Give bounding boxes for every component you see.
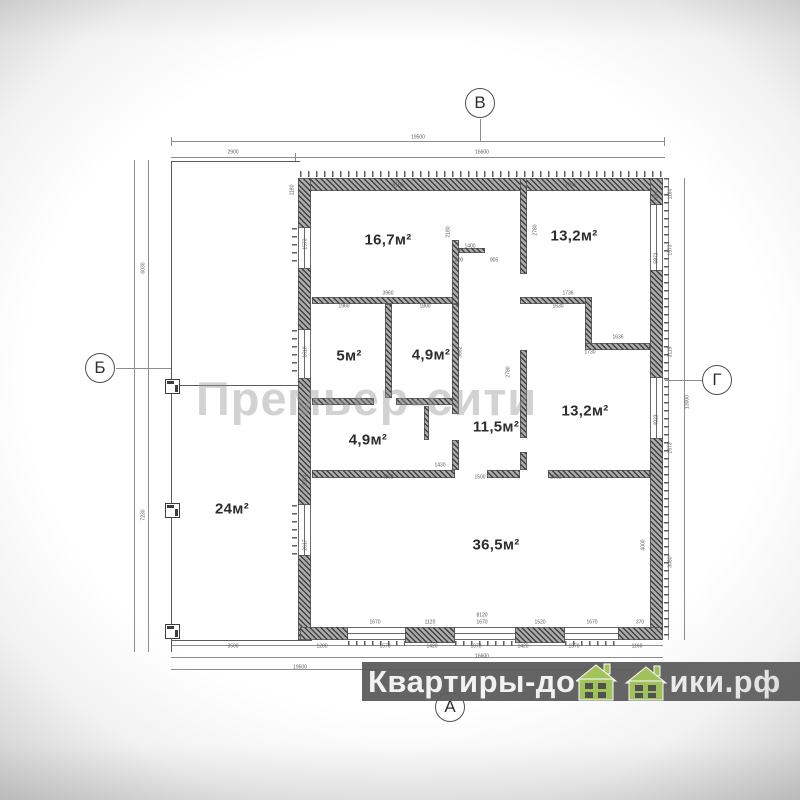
dimension-label: 1400 — [464, 245, 475, 250]
dimension-label: 5560 — [392, 184, 403, 189]
dimension-label: 1570 — [568, 645, 579, 650]
dimension-label: 1573 — [669, 442, 674, 453]
dimension-label: 1070 — [470, 645, 481, 650]
dimension-label: 1670 — [476, 621, 487, 626]
window-sill-pier — [515, 627, 565, 643]
window — [650, 378, 663, 438]
dimension-label: 1420 — [517, 645, 528, 650]
room-label: 4,9м² — [349, 432, 387, 449]
terrace-outline-bottom — [171, 640, 312, 641]
dimension-label: 1120 — [425, 621, 436, 626]
dimension-label: 1736 — [562, 292, 573, 297]
dimension-label: 1960 — [338, 305, 349, 310]
room-label: 5м² — [336, 348, 361, 365]
window — [455, 627, 515, 640]
insulation-ticks-left — [292, 505, 297, 555]
green-houses-icon — [576, 663, 668, 701]
dimension-label: 905 — [490, 259, 498, 264]
insulation-ticks-bottom — [455, 641, 515, 646]
dimension-label: 370 — [636, 621, 644, 626]
dimension-line — [171, 157, 665, 158]
exterior-wall-bottom — [300, 627, 348, 640]
interior-wall — [452, 240, 459, 304]
dimension-label: 1520 — [534, 621, 545, 626]
column-symbol — [165, 624, 180, 639]
dimension-label: 1180 — [655, 191, 660, 202]
dimension-label: 19500 — [293, 666, 307, 671]
interior-wall — [487, 470, 520, 478]
dimension-label: 3662 — [459, 346, 464, 357]
dimension-label: 1280 — [316, 645, 327, 650]
dimension-label: 1630 — [552, 305, 563, 310]
window — [348, 627, 405, 640]
interior-wall — [548, 470, 650, 478]
dimension-label: 1180 — [669, 189, 674, 200]
dimension-label: 1636 — [612, 336, 623, 341]
dimension-line — [684, 178, 685, 640]
dimension-label: 1430 — [434, 464, 445, 469]
dimension-label: 3960 — [382, 292, 393, 297]
dimension-label: 19500 — [411, 136, 425, 141]
floor-plan-canvas: В Б Г А 16,7м²13,2м²5м²4,9м²11,5м²13,2м²… — [0, 0, 800, 800]
dimension-label: 1093 — [304, 474, 309, 485]
dimension-label: 1610 — [304, 346, 309, 357]
dimension-label: 1670 — [586, 621, 597, 626]
dimension-label: 4023 — [655, 414, 660, 425]
dimension-label: 2180 — [447, 226, 452, 237]
dimension-label: 6030 — [142, 262, 147, 273]
axis-circle-top: В — [465, 88, 495, 118]
exterior-wall-top — [300, 178, 663, 191]
axis-leader-b — [116, 368, 171, 369]
dimension-label: 16600 — [475, 655, 489, 660]
interior-wall — [520, 452, 527, 470]
dimension-label: 4000 — [642, 539, 647, 550]
window-sill-pier — [405, 627, 455, 643]
axis-label-left: Б — [94, 358, 105, 378]
dimension-label: 1573 — [304, 238, 309, 249]
dimension-label: 3380 — [564, 184, 575, 189]
dimension-label: 1800 — [419, 305, 430, 310]
room-label: 36,5м² — [472, 537, 519, 554]
branding-text-right: ики.рф — [669, 666, 780, 697]
dimension-label: 8120 — [476, 614, 487, 619]
exterior-wall-left — [298, 268, 311, 330]
dimension-label: 5973 — [655, 252, 660, 263]
dimension-label: 7230 — [142, 509, 147, 520]
dimension-label: 3080 — [669, 556, 674, 567]
dimension-line — [171, 141, 665, 142]
exterior-wall-left — [298, 178, 311, 228]
exterior-wall-right — [650, 270, 663, 378]
insulation-ticks-left — [292, 228, 297, 268]
dimension-label: 1573 — [669, 244, 674, 255]
insulation-ticks-bottom — [348, 641, 405, 646]
dimension-label: 1180 — [291, 185, 296, 196]
dimension-label: 3115 — [669, 347, 674, 358]
room-label: 16,7м² — [364, 232, 411, 249]
dimension-tick — [664, 137, 665, 146]
dimension-label: 2617 — [304, 539, 309, 550]
column-symbol — [165, 379, 180, 394]
window — [565, 627, 618, 640]
dimension-line — [171, 657, 663, 658]
interior-wall — [520, 178, 527, 274]
axis-circle-left: Б — [85, 353, 115, 383]
plot-outline-left — [171, 161, 172, 652]
branding-text-left: Квартиры-до — [368, 666, 575, 697]
watermark-text: Премьер-сити — [196, 371, 596, 426]
axis-circle-right: Г — [702, 365, 732, 395]
dimension-label: 1160 — [632, 645, 643, 650]
dimension-label: 1570 — [379, 645, 390, 650]
dimension-label: 1420 — [426, 645, 437, 650]
dimension-label: 1670 — [369, 621, 380, 626]
dimension-line — [134, 160, 135, 652]
dimension-label: 2562 — [550, 476, 561, 481]
axis-label-right: Г — [712, 370, 721, 390]
dimension-tick — [171, 137, 172, 146]
dimension-label: 2900 — [227, 151, 238, 156]
dimension-label: 1500 — [474, 476, 485, 481]
dimension-label: 16600 — [475, 151, 489, 156]
room-label: 13,2м² — [550, 228, 597, 245]
column-symbol — [165, 503, 180, 518]
dimension-label: 13000 — [686, 395, 691, 409]
dimension-label: 3500 — [227, 645, 238, 650]
branding-bar: Квартиры-до ики.рф — [362, 662, 800, 701]
dimension-line — [148, 160, 149, 652]
axis-leader-v — [480, 119, 481, 141]
dimension-label: 1730 — [584, 351, 595, 356]
plot-outline-top — [171, 161, 300, 162]
dimension-label: 2780 — [534, 224, 539, 235]
dimension-label: 800 — [455, 259, 463, 264]
exterior-wall-right — [650, 438, 663, 640]
room-label: 24м² — [215, 501, 249, 518]
interior-wall — [312, 297, 458, 304]
insulation-ticks-top — [300, 171, 663, 177]
interior-wall — [452, 440, 459, 470]
exterior-wall-bottom — [618, 627, 663, 640]
dimension-label: 4060 — [382, 476, 393, 481]
axis-leader-g — [665, 380, 702, 381]
room-label: 4,9м² — [412, 347, 450, 364]
axis-label-top: В — [474, 93, 485, 113]
